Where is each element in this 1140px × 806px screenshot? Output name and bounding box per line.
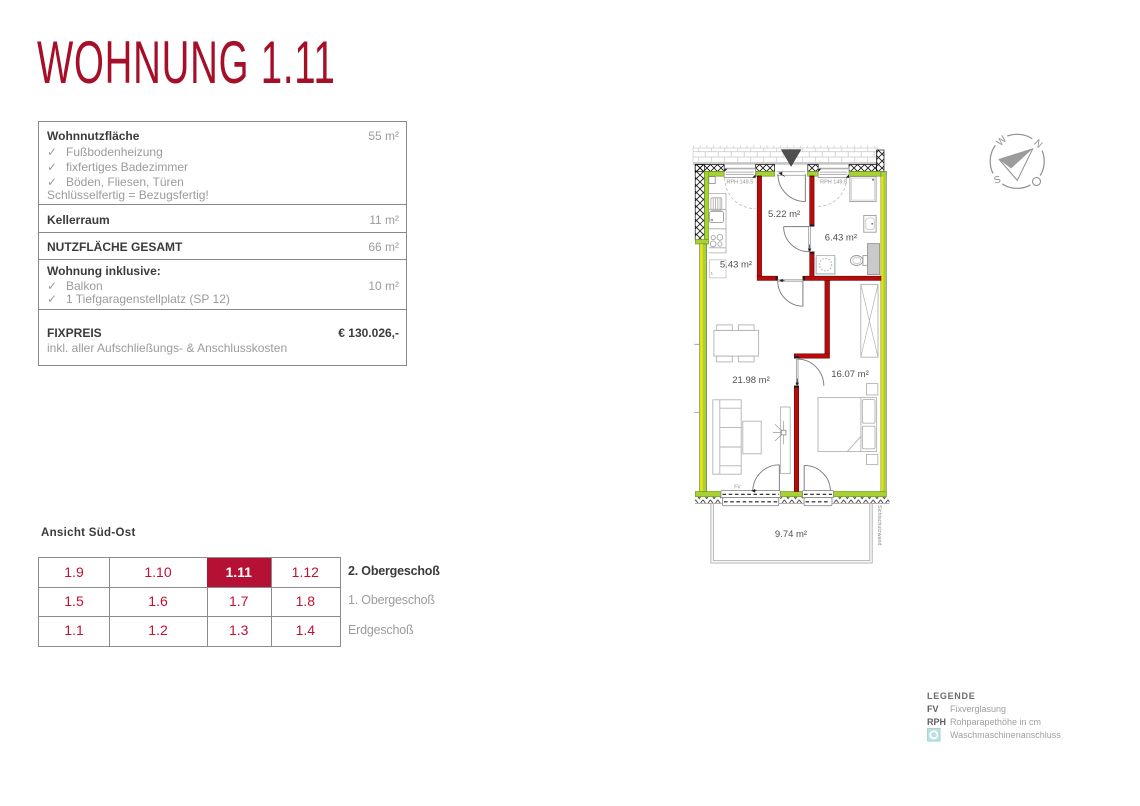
- svg-text:16.07 m²: 16.07 m²: [831, 369, 869, 380]
- svg-text:6.43 m²: 6.43 m²: [825, 233, 857, 244]
- svg-text:21.98 m²: 21.98 m²: [732, 375, 770, 386]
- svg-text:9.74 m²: 9.74 m²: [775, 529, 807, 540]
- svg-text:5.43 m²: 5.43 m²: [720, 260, 752, 271]
- svg-text:RPH 149.5: RPH 149.5: [820, 180, 847, 186]
- svg-text:RPH 149.5: RPH 149.5: [726, 180, 753, 186]
- svg-text:5.22 m²: 5.22 m²: [768, 209, 800, 220]
- svg-text:FV: FV: [734, 485, 741, 491]
- svg-text:Sichtschutzwand: Sichtschutzwand: [876, 505, 882, 545]
